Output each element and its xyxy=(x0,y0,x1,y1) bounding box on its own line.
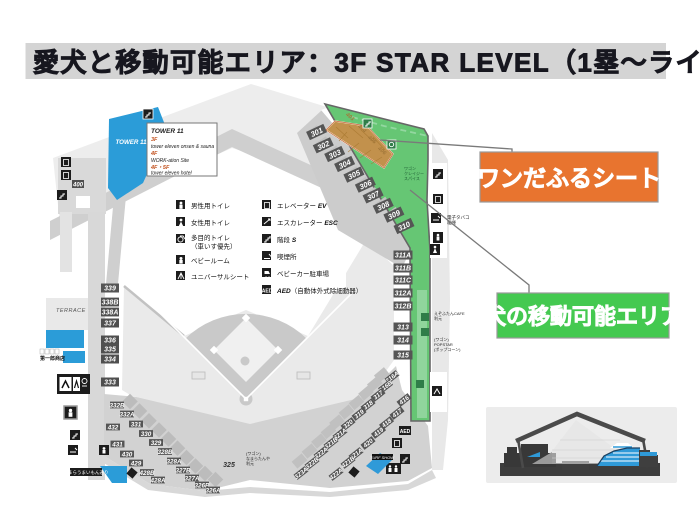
svg-text:TOWER 11: TOWER 11 xyxy=(115,139,147,146)
svg-text:tower eleven onsen & sauna: tower eleven onsen & sauna xyxy=(151,144,214,150)
svg-text:338A: 338A xyxy=(102,310,119,317)
svg-text:ユニバーサルシート: ユニバーサルシート xyxy=(191,273,249,281)
svg-text:327B: 327B xyxy=(175,467,191,474)
svg-text:(ポップコーン): (ポップコーン) xyxy=(434,346,461,352)
svg-text:3F: 3F xyxy=(151,137,158,143)
svg-text:TOWER 11: TOWER 11 xyxy=(151,128,184,135)
svg-text:428B: 428B xyxy=(138,470,155,477)
svg-text:400: 400 xyxy=(72,183,84,189)
svg-text:TERRACE: TERRACE xyxy=(56,308,86,314)
svg-text:女性用トイレ: 女性用トイレ xyxy=(191,218,230,227)
svg-text:AED（自動体外式除細動器）: AED（自動体外式除細動器） xyxy=(276,286,362,295)
svg-text:334: 334 xyxy=(104,357,116,364)
svg-text:階段 S: 階段 S xyxy=(277,235,297,244)
svg-text:328B: 328B xyxy=(157,449,173,456)
svg-text:TURF SHOW: TURF SHOW xyxy=(370,455,395,460)
svg-text:311A: 311A xyxy=(395,253,411,260)
svg-text:333: 333 xyxy=(104,380,116,387)
svg-text:多目的トイレ: 多目的トイレ xyxy=(191,233,230,242)
svg-text:312A: 312A xyxy=(395,291,412,298)
svg-text:325: 325 xyxy=(223,462,235,469)
svg-text:利元: 利元 xyxy=(246,460,254,466)
svg-text:（車いす優先）: （車いす優先） xyxy=(191,242,237,251)
svg-text:311B: 311B xyxy=(395,266,411,273)
svg-text:スパイス: スパイス xyxy=(404,176,420,181)
svg-text:314: 314 xyxy=(397,338,409,345)
svg-text:331: 331 xyxy=(131,421,142,428)
svg-text:332B: 332B xyxy=(109,402,125,409)
svg-text:431: 431 xyxy=(111,441,123,448)
svg-text:335: 335 xyxy=(104,347,116,354)
svg-text:エレベーター EV: エレベーター EV xyxy=(277,201,327,210)
svg-text:男性用トイレ: 男性用トイレ xyxy=(191,201,230,210)
svg-text:エスカレーター ESC: エスカレーター ESC xyxy=(277,218,338,227)
svg-text:429: 429 xyxy=(130,460,142,467)
svg-text:4F: 4F xyxy=(150,151,158,157)
svg-text:313: 313 xyxy=(397,325,409,332)
svg-text:327A: 327A xyxy=(184,475,200,482)
svg-text:tower eleven hotel: tower eleven hotel xyxy=(151,171,192,177)
svg-text:328A: 328A xyxy=(166,458,182,465)
svg-text:315: 315 xyxy=(397,353,409,360)
svg-text:339: 339 xyxy=(104,286,116,293)
svg-text:喫煙所: 喫煙所 xyxy=(277,252,297,261)
svg-text:AED: AED xyxy=(262,289,273,295)
svg-text:愛犬と移動可能エリア：3F STAR LEVEL（1塁～ライ: 愛犬と移動可能エリア：3F STAR LEVEL（1塁～ライト） xyxy=(33,48,700,78)
svg-text:犬の移動可能エリア: 犬の移動可能エリア xyxy=(484,304,682,329)
svg-text:336: 336 xyxy=(104,338,116,345)
svg-text:WORK-ation Site: WORK-ation Site xyxy=(151,158,189,164)
svg-text:326A: 326A xyxy=(205,487,221,494)
svg-text:利元: 利元 xyxy=(434,315,442,321)
svg-text:311C: 311C xyxy=(395,278,412,285)
svg-text:312B: 312B xyxy=(395,304,412,311)
svg-text:332A: 332A xyxy=(119,411,135,418)
svg-text:ベビーカー駐車場: ベビーカー駐車場 xyxy=(277,269,330,278)
svg-text:ベビールーム: ベビールーム xyxy=(191,256,230,265)
svg-text:AED: AED xyxy=(400,429,411,435)
svg-text:338B: 338B xyxy=(102,300,119,307)
svg-text:430: 430 xyxy=(121,451,133,458)
svg-text:337: 337 xyxy=(104,321,117,328)
svg-text:432: 432 xyxy=(107,424,119,431)
svg-text:ワンだふるシート: ワンだふるシート xyxy=(477,165,661,191)
svg-text:428A: 428A xyxy=(149,477,166,484)
svg-text:第一郎商店: 第一郎商店 xyxy=(40,355,65,362)
svg-text:329: 329 xyxy=(151,440,162,447)
svg-text:なまらうまいもん通り: なまらうまいもん通り xyxy=(64,469,109,476)
svg-text:330: 330 xyxy=(141,431,152,438)
